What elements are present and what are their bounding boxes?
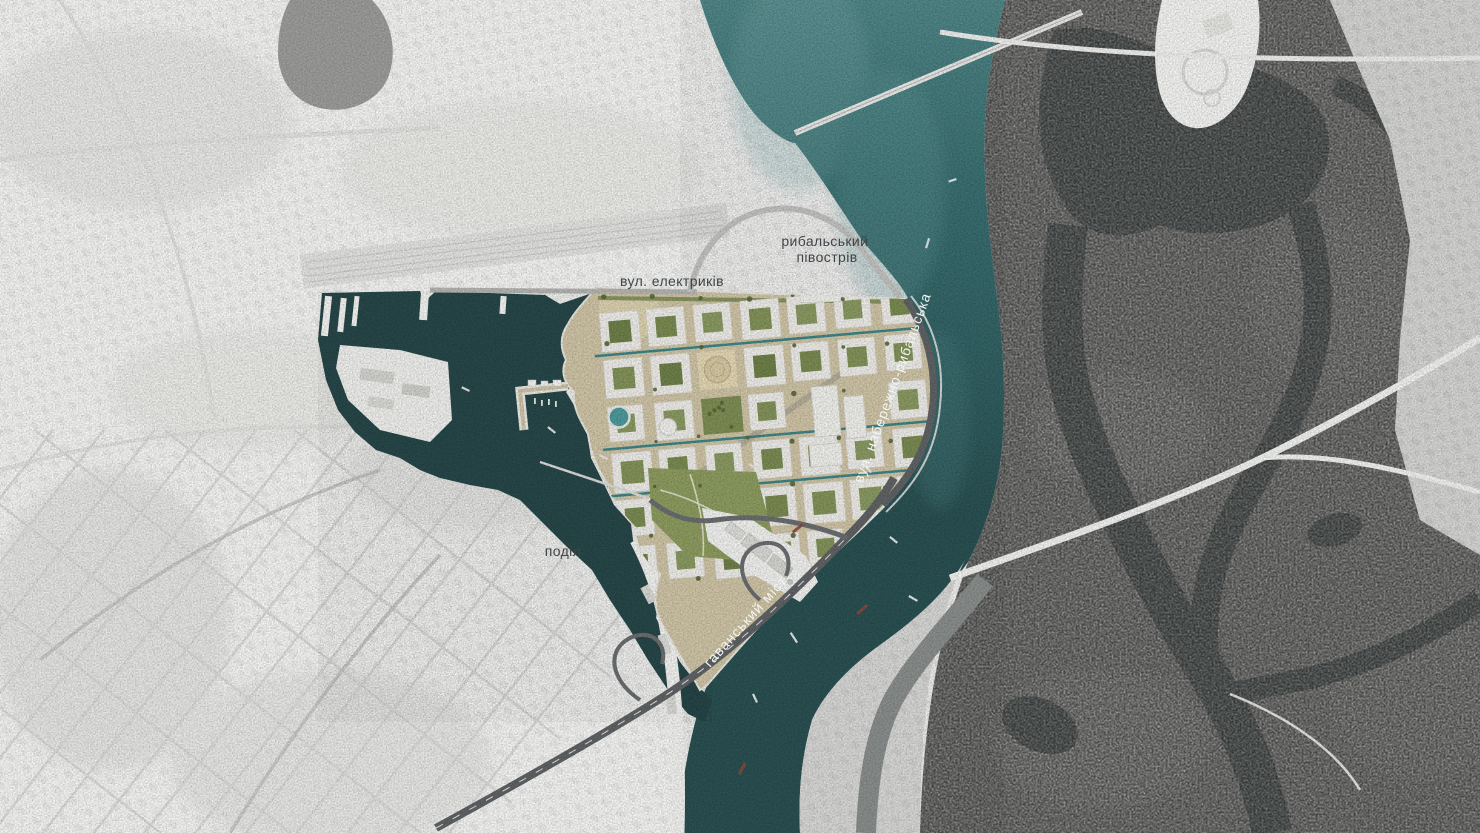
map-canvas: рибальський півострів вул. електриків ву… xyxy=(0,0,1480,833)
global-grain xyxy=(0,0,1480,833)
label-podil: поділ xyxy=(545,543,582,559)
satellite-map: рибальський півострів вул. електриків ву… xyxy=(0,0,1480,833)
label-elektrykiv-street: вул. електриків xyxy=(620,273,724,289)
